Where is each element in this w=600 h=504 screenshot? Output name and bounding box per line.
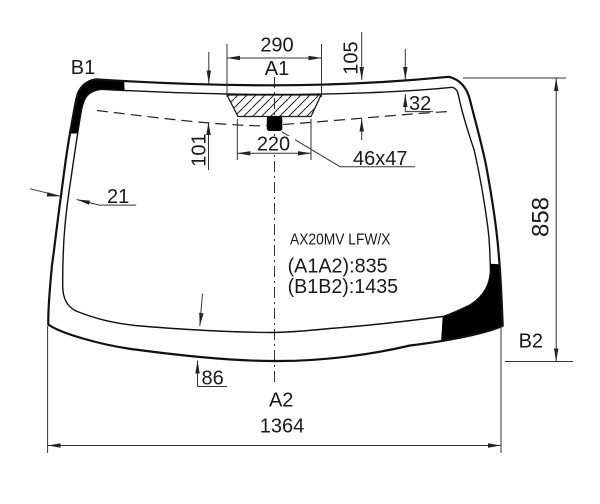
svg-text:86: 86 — [202, 368, 224, 390]
svg-text:AX20MV LFW/X: AX20MV LFW/X — [290, 232, 391, 249]
svg-text:(A1A2):835: (A1A2):835 — [288, 256, 388, 278]
svg-text:B1: B1 — [71, 57, 95, 79]
svg-text:32: 32 — [409, 93, 431, 115]
svg-text:21: 21 — [107, 186, 129, 208]
svg-text:A2: A2 — [269, 390, 293, 412]
svg-text:101: 101 — [189, 133, 211, 166]
svg-text:46x47: 46x47 — [353, 148, 408, 170]
svg-text:B2: B2 — [519, 331, 543, 353]
svg-text:290: 290 — [260, 35, 293, 57]
svg-text:A1: A1 — [265, 58, 289, 80]
svg-text:858: 858 — [528, 197, 555, 237]
svg-text:1364: 1364 — [260, 416, 305, 438]
svg-text:105: 105 — [341, 41, 363, 74]
svg-text:220: 220 — [257, 134, 290, 156]
svg-text:(B1B2):1435: (B1B2):1435 — [288, 276, 399, 298]
